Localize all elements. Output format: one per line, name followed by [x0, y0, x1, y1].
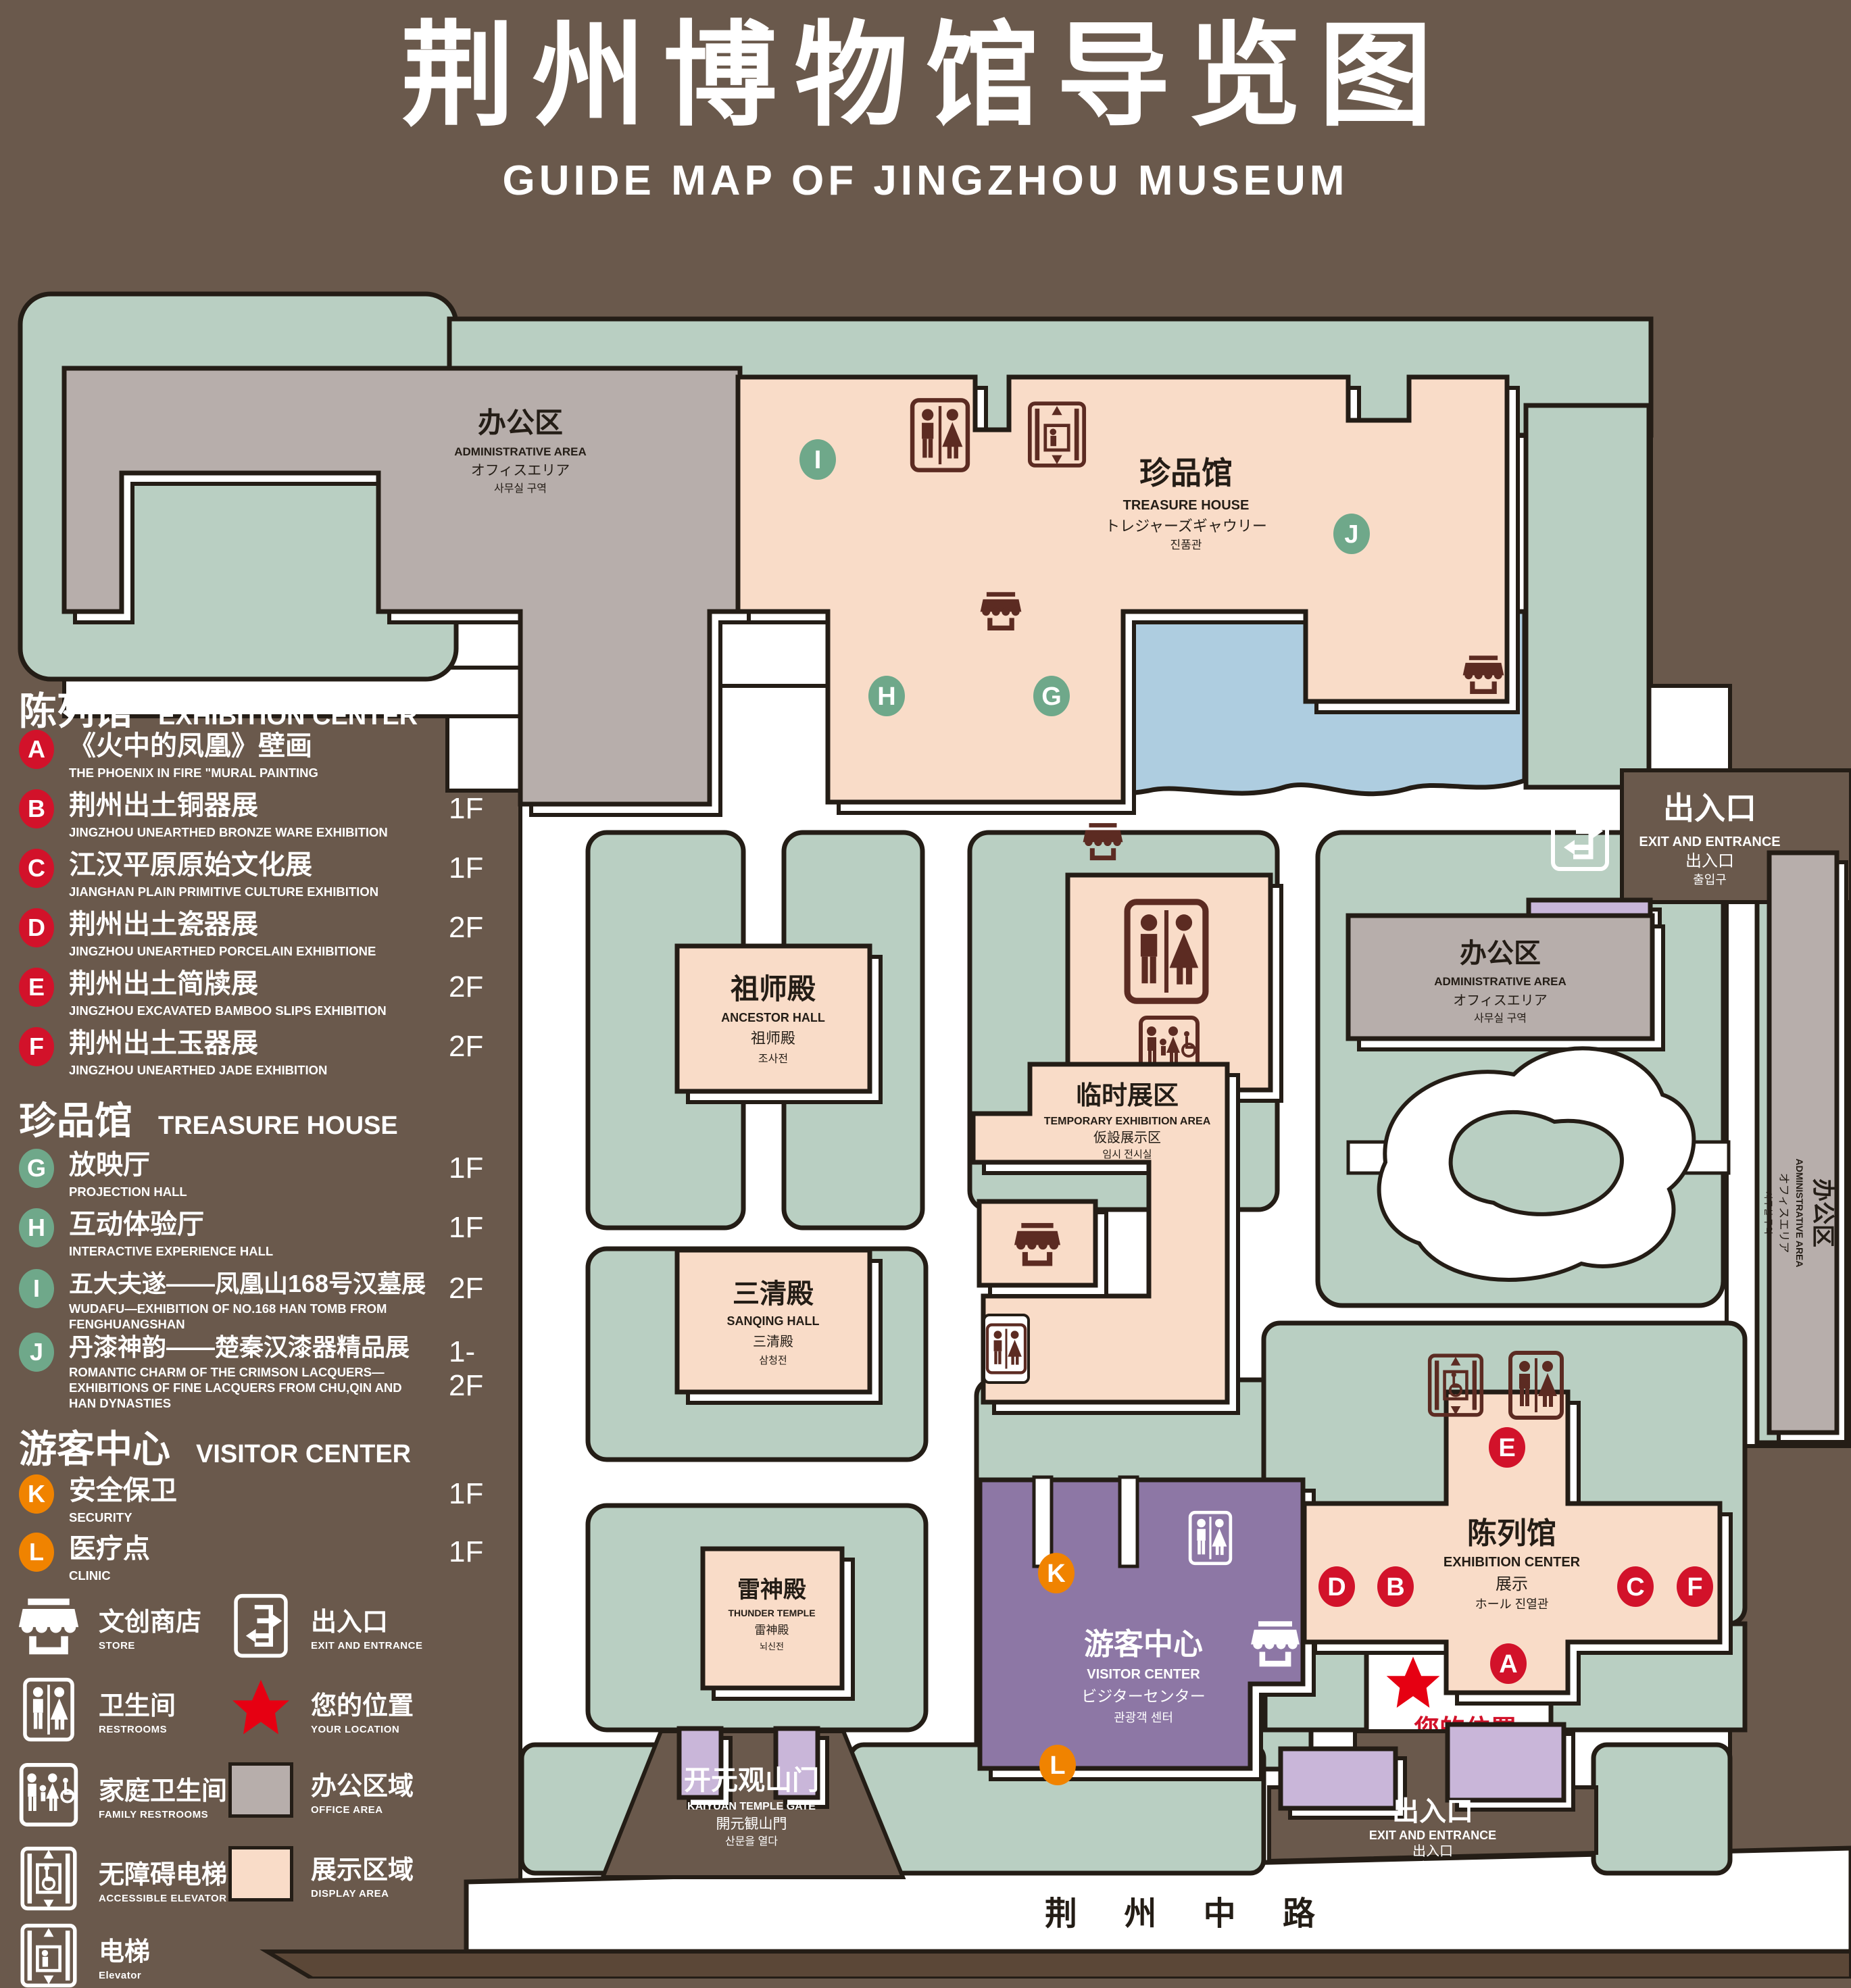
badge-f: F	[1677, 1566, 1713, 1607]
exit-icon	[228, 1593, 293, 1658]
display-area-swatch	[228, 1846, 293, 1902]
office-area-swatch	[228, 1762, 293, 1818]
svg-text:C: C	[1626, 1573, 1644, 1601]
legend-item-e: E 荆州出土简牍展JINGZHOU EXCAVATED BAMBOO SLIPS…	[19, 968, 500, 1018]
gate-building-s	[1281, 1749, 1396, 1808]
sanqing-zh: 三清殿	[733, 1279, 814, 1309]
sanqing-ja: 三清殿	[753, 1334, 793, 1349]
exhibition-en: EXHIBITION CENTER	[1443, 1555, 1581, 1570]
accessible-elevator-icon	[16, 1846, 81, 1911]
badge-b: B	[1377, 1566, 1414, 1607]
exhibition-ja: 展示	[1496, 1575, 1528, 1593]
treasure-ja: トレジャーズギャウリー	[1105, 518, 1267, 535]
gate-ja: 開元観山門	[716, 1816, 787, 1832]
svg-text:A: A	[1499, 1650, 1517, 1679]
ancestor-ko: 조사전	[758, 1053, 788, 1065]
exit-south: 出入口 EXIT AND ENTRANCE 出入口 출입구	[1269, 1724, 1596, 1872]
legend-item-a: A 《火中的凤凰》壁画THE PHOENIX IN FIRE "MURAL PA…	[19, 730, 500, 780]
badge-h: H	[868, 676, 905, 716]
legend-section-treasure: 珍品馆TREASURE HOUSE	[19, 1091, 398, 1145]
badge-a: A	[1490, 1643, 1527, 1684]
svg-text:D: D	[1327, 1573, 1346, 1601]
admin-e-ja: オフィスエリア	[1453, 993, 1548, 1008]
administrative-area-e: 办公区 ADMINISTRATIVE AREA オフィスエリア 사무실 구역	[1348, 916, 1663, 1049]
badge-k: K	[1038, 1553, 1075, 1593]
temporary-ko: 임시 전시실	[1102, 1149, 1152, 1160]
treasure-en: TREASURE HOUSE	[1123, 498, 1250, 513]
legend-display-area: 展示区域DISPLAY AREA	[228, 1846, 414, 1902]
exit-ne-ja: 出入口	[1685, 852, 1734, 870]
admin-strip-en: ADMINISTRATIVE AREA	[1794, 1159, 1805, 1268]
legend-item-l: L 医疗点CLINIC 1F	[19, 1533, 500, 1583]
legend-item-f: F 荆州出土玉器展JINGZHOU UNEARTHED JADE EXHIBIT…	[19, 1027, 500, 1078]
exit-ne-ko: 출입구	[1693, 873, 1727, 887]
badge-l: L	[1039, 1745, 1076, 1785]
badge-d: D	[1318, 1566, 1355, 1607]
legend: 陈列馆EXHIBITION CENTER A 《火中的凤凰》壁画THE PHOE…	[0, 0, 520, 1979]
badge-c: C	[19, 849, 54, 888]
exhibition-ko: ホール 진열관	[1475, 1597, 1549, 1611]
legend-store: 文创商店STORE	[16, 1593, 201, 1658]
thunder-ko: 뇌신전	[760, 1641, 784, 1651]
thunder-ja: 雷神殿	[755, 1624, 789, 1637]
legend-item-g: G 放映厅PROJECTION HALL 1F	[19, 1149, 500, 1199]
admin-e-zh: 办公区	[1460, 939, 1541, 968]
exit-s-en: EXIT AND ENTRANCE	[1369, 1829, 1496, 1842]
restrooms-icon	[16, 1677, 81, 1742]
legend-item-d: D 荆州出土瓷器展JINGZHOU UNEARTHED PORCELAIN EX…	[19, 908, 500, 959]
road-name: 荆 州 中 路	[1045, 1896, 1334, 1932]
badge-j: J	[19, 1333, 54, 1372]
svg-text:L: L	[1050, 1751, 1065, 1780]
admin-e-en: ADMINISTRATIVE AREA	[1434, 975, 1566, 988]
svg-text:J: J	[1344, 520, 1358, 549]
svg-text:F: F	[1687, 1573, 1702, 1601]
exhibition-zh: 陈列馆	[1467, 1517, 1556, 1550]
legend-office-area: 办公区域OFFICE AREA	[228, 1762, 414, 1818]
visitor-en: VISITOR CENTER	[1087, 1667, 1200, 1682]
visitor-ja: ビジターセンター	[1081, 1687, 1206, 1705]
badge-g: G	[19, 1149, 54, 1188]
exit-ne-zh: 出入口	[1663, 791, 1756, 826]
family-restroom-icon	[16, 1762, 81, 1827]
ancestor-ja: 祖师殿	[751, 1030, 795, 1047]
treasure-ko: 진품관	[1170, 539, 1202, 551]
legend-family-restrooms: 家庭卫生间FAMILY RESTROOMS	[16, 1762, 227, 1827]
legend-your-location: 您的位置YOUR LOCATION	[228, 1677, 414, 1742]
temporary-ja: 仮設展示区	[1093, 1130, 1161, 1145]
your-location-star	[228, 1677, 293, 1742]
legend-exit: 出入口EXIT AND ENTRANCE	[228, 1593, 422, 1658]
legend-item-b: B 荆州出土铜器展JINGZHOU UNEARTHED BRONZE WARE …	[19, 789, 500, 840]
thunder-en: THUNDER TEMPLE	[728, 1608, 815, 1618]
badge-j: J	[1333, 514, 1370, 554]
admin-e-ko: 사무실 구역	[1474, 1012, 1527, 1024]
badge-d: D	[19, 908, 54, 947]
legend-section-exhibition: 陈列馆EXHIBITION CENTER	[19, 681, 418, 736]
store-icon	[16, 1593, 81, 1658]
svg-text:E: E	[1498, 1434, 1515, 1462]
visitor-zh: 游客中心	[1084, 1628, 1203, 1661]
admin-strip-zh: 办公区	[1810, 1178, 1835, 1247]
svg-text:G: G	[1041, 682, 1062, 711]
badge-i: I	[799, 439, 836, 480]
badge-f: F	[19, 1027, 54, 1066]
gate-en: KAIYUAN TEMPLE GATE	[687, 1801, 816, 1812]
exit-s-ko: 출입구	[1418, 1860, 1446, 1872]
legend-item-k: K 安全保卫SECURITY 1F	[19, 1474, 500, 1525]
temporary-en: TEMPORARY EXHIBITION AREA	[1044, 1116, 1211, 1127]
svg-text:I: I	[814, 446, 822, 474]
legend-section-visitor: 游客中心VISITOR CENTER	[19, 1419, 411, 1474]
exit-ne-en: EXIT AND ENTRANCE	[1639, 835, 1780, 849]
admin-strip-ja: オフィスエリア	[1777, 1173, 1790, 1253]
thunder-zh: 雷神殿	[737, 1577, 806, 1603]
legend-item-j: J 丹漆神韵——楚秦汉漆器精品展ROMANTIC CHARM OF THE CR…	[19, 1333, 500, 1412]
store-building	[979, 1201, 1106, 1296]
temporary-zh: 临时展区	[1076, 1082, 1179, 1110]
legend-item-h: H 互动体验厅INTERACTIVE EXPERIENCE HALL 1F	[19, 1208, 500, 1259]
gate-zh: 开元观山门	[684, 1766, 819, 1795]
badge-h: H	[19, 1208, 54, 1247]
badge-l: L	[19, 1533, 54, 1572]
exit-s-ja: 出入口	[1412, 1843, 1453, 1859]
ancestor-zh: 祖师殿	[731, 973, 816, 1005]
badge-e: E	[19, 968, 54, 1007]
admin-strip-ko: 사무실 구역	[1763, 1191, 1773, 1234]
ancestor-en: ANCESTOR HALL	[721, 1011, 825, 1024]
legend-accessible-elevator: 无障碍电梯ACCESSIBLE ELEVATOR	[16, 1846, 227, 1911]
treasure-zh: 珍品馆	[1139, 455, 1233, 491]
svg-text:H: H	[877, 682, 895, 711]
ancestor-hall: 祖师殿 ANCESTOR HALL 祖师殿 조사전	[677, 946, 881, 1102]
badge-c: C	[1617, 1566, 1654, 1607]
svg-text:B: B	[1386, 1573, 1404, 1601]
badge-i: I	[19, 1269, 54, 1308]
legend-item-c: C 江汉平原原始文化展JIANGHAN PLAIN PRIMITIVE CULT…	[19, 849, 500, 899]
badge-a: A	[19, 730, 54, 769]
legend-restrooms: 卫生间RESTROOMS	[16, 1677, 176, 1742]
badge-b: B	[19, 789, 54, 828]
sanqing-en: SANQING HALL	[727, 1314, 820, 1328]
visitor-ko: 관광객 센터	[1114, 1711, 1173, 1724]
svg-text:K: K	[1047, 1560, 1066, 1588]
gate-building-s	[1448, 1724, 1564, 1800]
legend-item-i: I 五大夫遂——凤凰山168号汉墓展WUDAFU—EXHIBITION OF N…	[19, 1269, 500, 1332]
exit-s-zh: 出入口	[1392, 1797, 1473, 1827]
badge-k: K	[19, 1474, 54, 1514]
thunder-temple: 雷神殿 THUNDER TEMPLE 雷神殿 뇌신전	[703, 1549, 853, 1699]
badge-e: E	[1489, 1427, 1525, 1468]
sanqing-hall: 三清殿 SANQING HALL 三清殿 삼청전	[677, 1250, 881, 1403]
administrative-strip: 办公区 ADMINISTRATIVE AREA オフィスエリア 사무실 구역	[1763, 853, 1846, 1442]
sanqing-ko: 삼청전	[759, 1355, 787, 1366]
gate-ko: 산문을 열다	[725, 1835, 778, 1847]
badge-g: G	[1033, 676, 1070, 716]
